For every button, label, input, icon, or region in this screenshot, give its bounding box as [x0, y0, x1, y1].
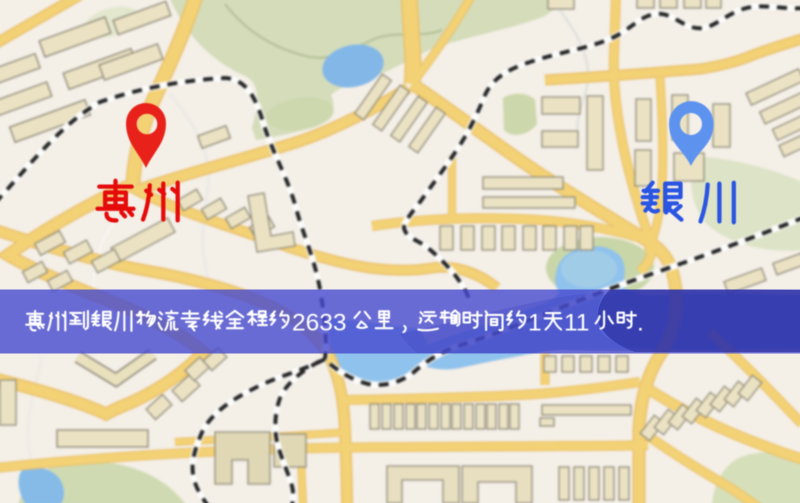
svg-text:2633: 2633	[292, 310, 347, 337]
svg-text:11: 11	[564, 310, 589, 337]
svg-text:1: 1	[528, 310, 542, 337]
svg-text:.: .	[637, 310, 644, 337]
